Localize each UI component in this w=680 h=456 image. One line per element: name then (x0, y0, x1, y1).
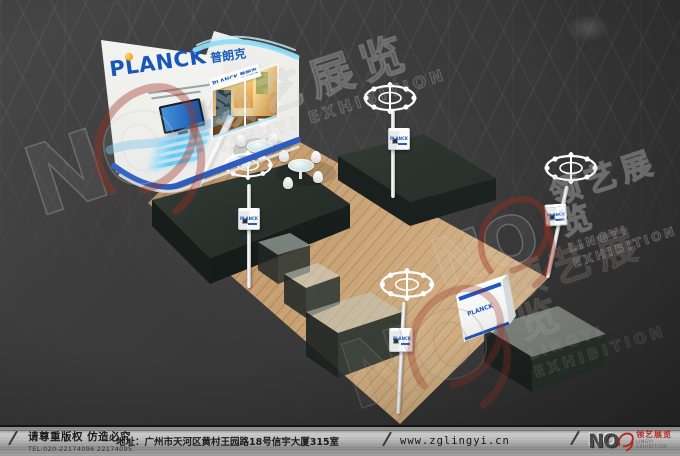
ceiling-light-glow (566, 14, 610, 42)
lamp-sign-cube: PLANCK (238, 208, 260, 230)
cube-brand-text: PLANCK (390, 137, 408, 141)
lamp-crown-icon (222, 148, 274, 186)
cube-brand-bar (398, 143, 407, 145)
chair (279, 150, 289, 162)
logo-one-swoosh-icon (615, 429, 635, 453)
lamp-pole (391, 110, 395, 198)
chair (311, 151, 321, 163)
round-glass-table (288, 159, 314, 172)
lightbox-photo-teal (216, 90, 231, 117)
cube-brand-text: PLANCK (393, 337, 411, 341)
cube-brand-bar (555, 218, 564, 221)
cube-brand-bar (401, 343, 410, 345)
tv-screen (161, 100, 203, 131)
reception-counter: PLANCK (444, 272, 524, 362)
sign-brand-cn: 普朗克 (239, 68, 258, 79)
lamp-sign-cube: PLANCK (389, 328, 413, 352)
lamp-crown-icon (362, 80, 418, 120)
render-image: PLANCK 普朗克 PLANCK 普朗克 (0, 0, 680, 456)
lamp-sign-cube: PLANCK (388, 128, 410, 150)
logo-cn-text: 领艺展览 (636, 431, 680, 440)
cube-brand-text: PLANCK (240, 217, 258, 221)
cube-brand-bar (248, 223, 257, 225)
website-url: www.zglingyi.cn (400, 435, 510, 447)
chair (283, 177, 293, 189)
logo-no-text: NO (588, 432, 618, 451)
lamp-crown-icon (543, 150, 599, 190)
lamp-crown-icon (378, 266, 436, 307)
counter-graphics: PLANCK (444, 272, 524, 362)
counter-brand-text: PLANCK (466, 302, 494, 318)
divider-tick (8, 431, 18, 446)
chair (236, 135, 246, 147)
company-address: 地址：广州市天河区黄村王园路18号信宇大厦315室 (116, 434, 339, 448)
divider-tick (382, 432, 392, 447)
lingyi-logo: NO 领艺展览 LINGYI EXHIBITION (588, 429, 680, 453)
chair (313, 171, 323, 183)
logo-en-text: LINGYI EXHIBITION (636, 440, 680, 451)
lamp-sign-cube: PLANCK (544, 203, 567, 226)
lamp-pole (247, 184, 251, 288)
info-bar: 请尊重版权 仿造必究 TEL:020-22174096 22174095 地址：… (0, 425, 680, 456)
cube-brand-text: PLANCK (547, 212, 565, 217)
divider-tick (570, 431, 580, 446)
